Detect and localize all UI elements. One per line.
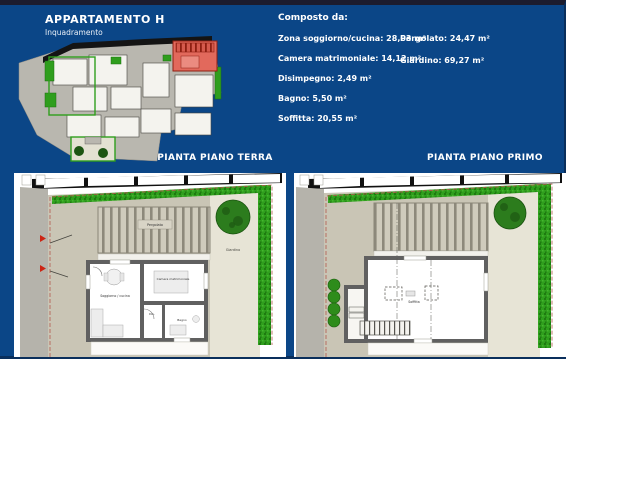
tree: [494, 197, 526, 229]
patio-strip: [368, 343, 488, 355]
walkway: [374, 251, 488, 256]
garden-label: Giardino: [226, 248, 240, 252]
plan-sheet: APPARTAMENTO H Inquadramento Composto da…: [0, 0, 640, 480]
bathroom-label: Bagno: [177, 318, 187, 322]
patio-strip: [91, 342, 208, 355]
composition-heading: Composto da:: [278, 13, 348, 23]
composition-item: Soffitta: 20,55 m²: [278, 114, 426, 134]
ground-floor-plan: Giardino Pergolato: [14, 173, 286, 357]
hallway-label: Dis.: [149, 312, 155, 316]
first-floor-plan: Soffitta: [294, 173, 566, 357]
bedroom-label: Camera matrimoniale: [157, 277, 190, 281]
composition-item: Giardino: 69,27 m²: [400, 56, 490, 78]
blue-board: APPARTAMENTO H Inquadramento Composto da…: [0, 0, 566, 359]
road-strip: [296, 187, 324, 357]
living-room-label: Soggiorno / cucina: [100, 294, 130, 298]
site-courtyard: [71, 137, 115, 161]
attic-hatch: [406, 291, 415, 296]
walkway: [98, 254, 210, 260]
attic-label: Soffitta: [408, 300, 420, 304]
pergola: Pergolato: [98, 207, 210, 253]
bed: [154, 271, 188, 293]
site-plan-drawing: [15, 33, 237, 165]
section-label-first-floor: PIANTA PIANO PRIMO: [410, 153, 560, 163]
hedge-right: [258, 185, 271, 345]
composition-list-right: Pergolato: 24,47 m² Giardino: 69,27 m²: [400, 34, 490, 78]
building-ground-floor: Soggiorno / cucina Camera matrimoniale B…: [86, 260, 208, 342]
tree: [216, 200, 250, 234]
composition-item: Bagno: 5,50 m²: [278, 94, 426, 114]
hedge-right: [538, 184, 551, 348]
pergola: [374, 203, 488, 251]
page-title: APPARTAMENTO H: [45, 13, 165, 26]
composition-item: Pergolato: 24,47 m²: [400, 34, 490, 56]
pergola-label: Pergolato: [147, 223, 163, 227]
road-strip: [20, 187, 48, 357]
site-highlighted-unit-h: [173, 41, 217, 71]
